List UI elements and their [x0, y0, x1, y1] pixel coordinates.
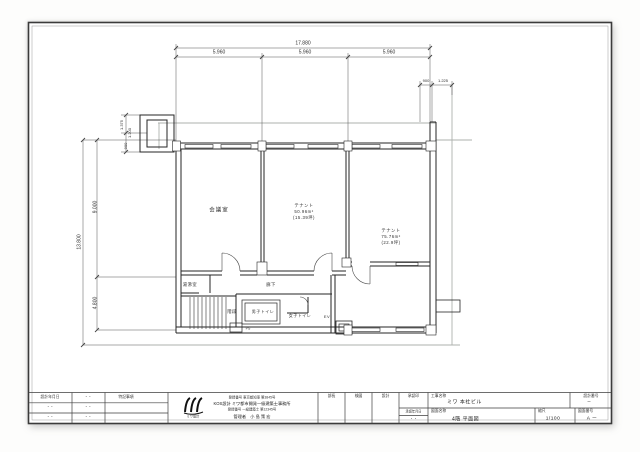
drawing-sheet: 17.880 5.960 5.960 5.960 900 1.225 13.80…: [0, 0, 640, 452]
approval-date-value: ・・: [410, 418, 418, 422]
room-label-tenant1-area: 50.96m²: [294, 210, 313, 214]
project-name-value: ミワ 本社ビル: [447, 401, 482, 406]
approval-seal-label: 承認印: [408, 395, 419, 399]
dim-top-seg1: 5.960: [213, 50, 226, 55]
floor-plan-linework: [0, 0, 640, 452]
room-label-tenant1-tsubo: (15.39坪): [293, 216, 315, 220]
titleblock-date-cell: ・・: [46, 406, 54, 410]
dim-top-seg2: 5.960: [299, 50, 312, 55]
room-label-kitchen: 湯沸室: [183, 283, 197, 287]
titleblock-date-cell: ・・: [84, 406, 92, 410]
room-label-tenant2-area: 75.76m²: [381, 235, 400, 239]
seal-cell-design: 設計: [382, 395, 390, 399]
scale-value: 1/100: [546, 418, 561, 423]
dim-shaft-b: 1.200: [128, 128, 132, 138]
room-label-corridor: 廊下: [266, 283, 276, 287]
titleblock-design-date-label: 設計年月日: [41, 396, 60, 400]
sheet-number-label: 図面番号: [578, 410, 593, 414]
dim-shaft-a: 1.375: [120, 120, 124, 130]
room-label-stairs: 階段: [227, 310, 237, 314]
dim-left-total: 13.800: [78, 234, 83, 249]
project-name-label: 工事名称: [431, 395, 446, 399]
room-label-tenant2: テナント: [381, 229, 400, 233]
room-label-meeting: 会議室: [209, 208, 229, 214]
titleblock-date-cell: ・・: [84, 396, 92, 400]
seal-cell-check: 検図: [355, 395, 363, 399]
dim-right-b: 1.225: [438, 79, 448, 83]
firm-name-line: KOS設計 ミワ都市開発一級建築士事務所: [213, 401, 290, 405]
room-label-mens-toilet: 男子トイレ: [252, 310, 275, 314]
firm-logo-caption: ミワ設計: [187, 415, 200, 418]
room-label-elevator: EV: [324, 315, 330, 319]
room-label-tenant2-tsubo: (22.9坪): [381, 241, 400, 245]
dim-right-a: 900: [423, 79, 430, 83]
dim-top-total: 17.880: [295, 41, 310, 46]
room-label-womens-toilet: 女子トイレ: [289, 314, 312, 318]
titleblock-date-cell: ・・: [46, 416, 54, 420]
firm-manager-line: 管理者 小 島 策 宏: [234, 414, 271, 418]
dim-left-seg-bottom: 4.800: [94, 297, 99, 310]
dim-top-seg3: 5.960: [383, 50, 396, 55]
titleblock-date-cell: ・・: [84, 416, 92, 420]
design-number-label: 設計番号: [583, 395, 598, 399]
scale-label: 縮尺: [538, 410, 546, 414]
drawing-name-value: 4階 平面図: [452, 418, 479, 423]
room-label-pipe-space: PS: [246, 327, 251, 331]
titleblock-notes-label: 特記事項: [118, 396, 133, 400]
approval-date-label: 承認年月日: [406, 410, 422, 413]
firm-registration-line1: 登録番号 東京都知事 第3845号: [229, 396, 276, 399]
design-number-value: ー: [587, 401, 591, 405]
dim-left-seg-top: 9.000: [94, 201, 99, 214]
dim-shaft-c: 900: [124, 143, 128, 150]
sheet-number-value: A ー: [587, 418, 598, 423]
seal-cell-chief: 部長: [328, 395, 336, 399]
drawing-name-label: 図面名称: [431, 410, 446, 414]
firm-registration-line2: 登録番号 一級建築士 第12345号: [228, 408, 277, 411]
room-label-tenant1: テナント: [294, 204, 313, 208]
